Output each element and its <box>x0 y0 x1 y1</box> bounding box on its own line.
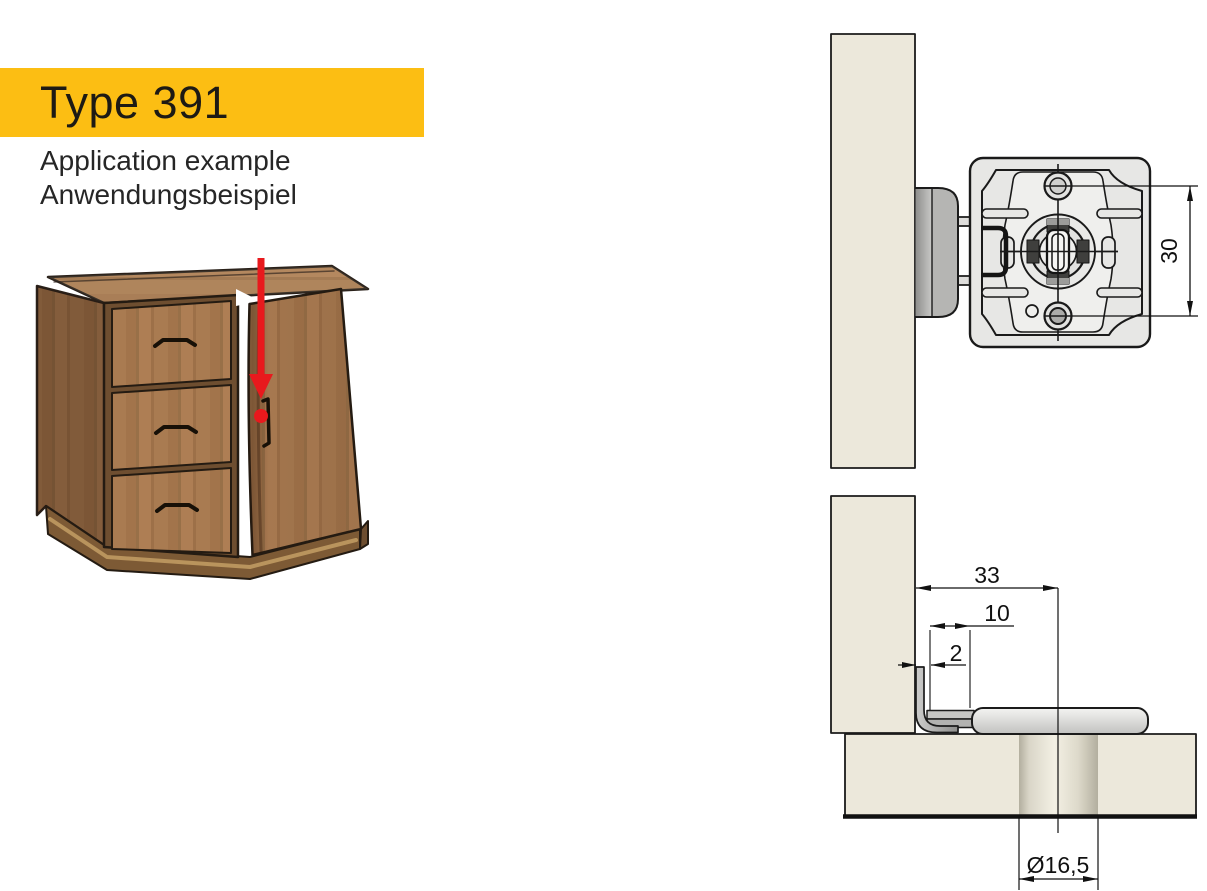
drawer-column <box>104 295 238 557</box>
dimension-33-label: 33 <box>974 562 1000 588</box>
mounting-screw-top <box>1044 173 1072 200</box>
subtitle-english: Application example <box>40 144 297 178</box>
technical-drawings: 30 33 <box>810 0 1207 891</box>
type-banner: Type 391 <box>0 68 424 137</box>
lock-housing-section <box>972 708 1148 734</box>
pin-hole <box>1026 305 1038 317</box>
dimension-2-label: 2 <box>950 640 963 666</box>
door-panel-section <box>831 496 915 733</box>
cabinet-door <box>249 289 361 555</box>
subtitle-block: Application example Anwendungsbeispiel <box>40 144 297 212</box>
catalog-page: Type 391 Application example Anwendungsb… <box>0 0 1207 891</box>
lock-front-view: 30 <box>831 34 1198 468</box>
drawer-3 <box>112 468 231 553</box>
subtitle-german: Anwendungsbeispiel <box>40 178 297 212</box>
dimension-10-label: 10 <box>984 600 1010 626</box>
dimension-hole-diameter-label: Ø16,5 <box>1027 852 1090 878</box>
side-panel <box>831 34 915 468</box>
mounting-screw-bottom <box>1044 303 1072 330</box>
mounting-section-view: 33 10 2 Ø16,5 <box>831 496 1197 890</box>
cabinet-illustration <box>25 250 405 590</box>
drawer-1 <box>112 301 231 387</box>
side-slot <box>1102 237 1115 268</box>
strike-block <box>916 188 959 317</box>
lock-position-dot <box>254 409 268 423</box>
page-title: Type 391 <box>40 77 229 129</box>
latch-bar <box>927 711 974 720</box>
dimension-30-label: 30 <box>1156 238 1182 264</box>
